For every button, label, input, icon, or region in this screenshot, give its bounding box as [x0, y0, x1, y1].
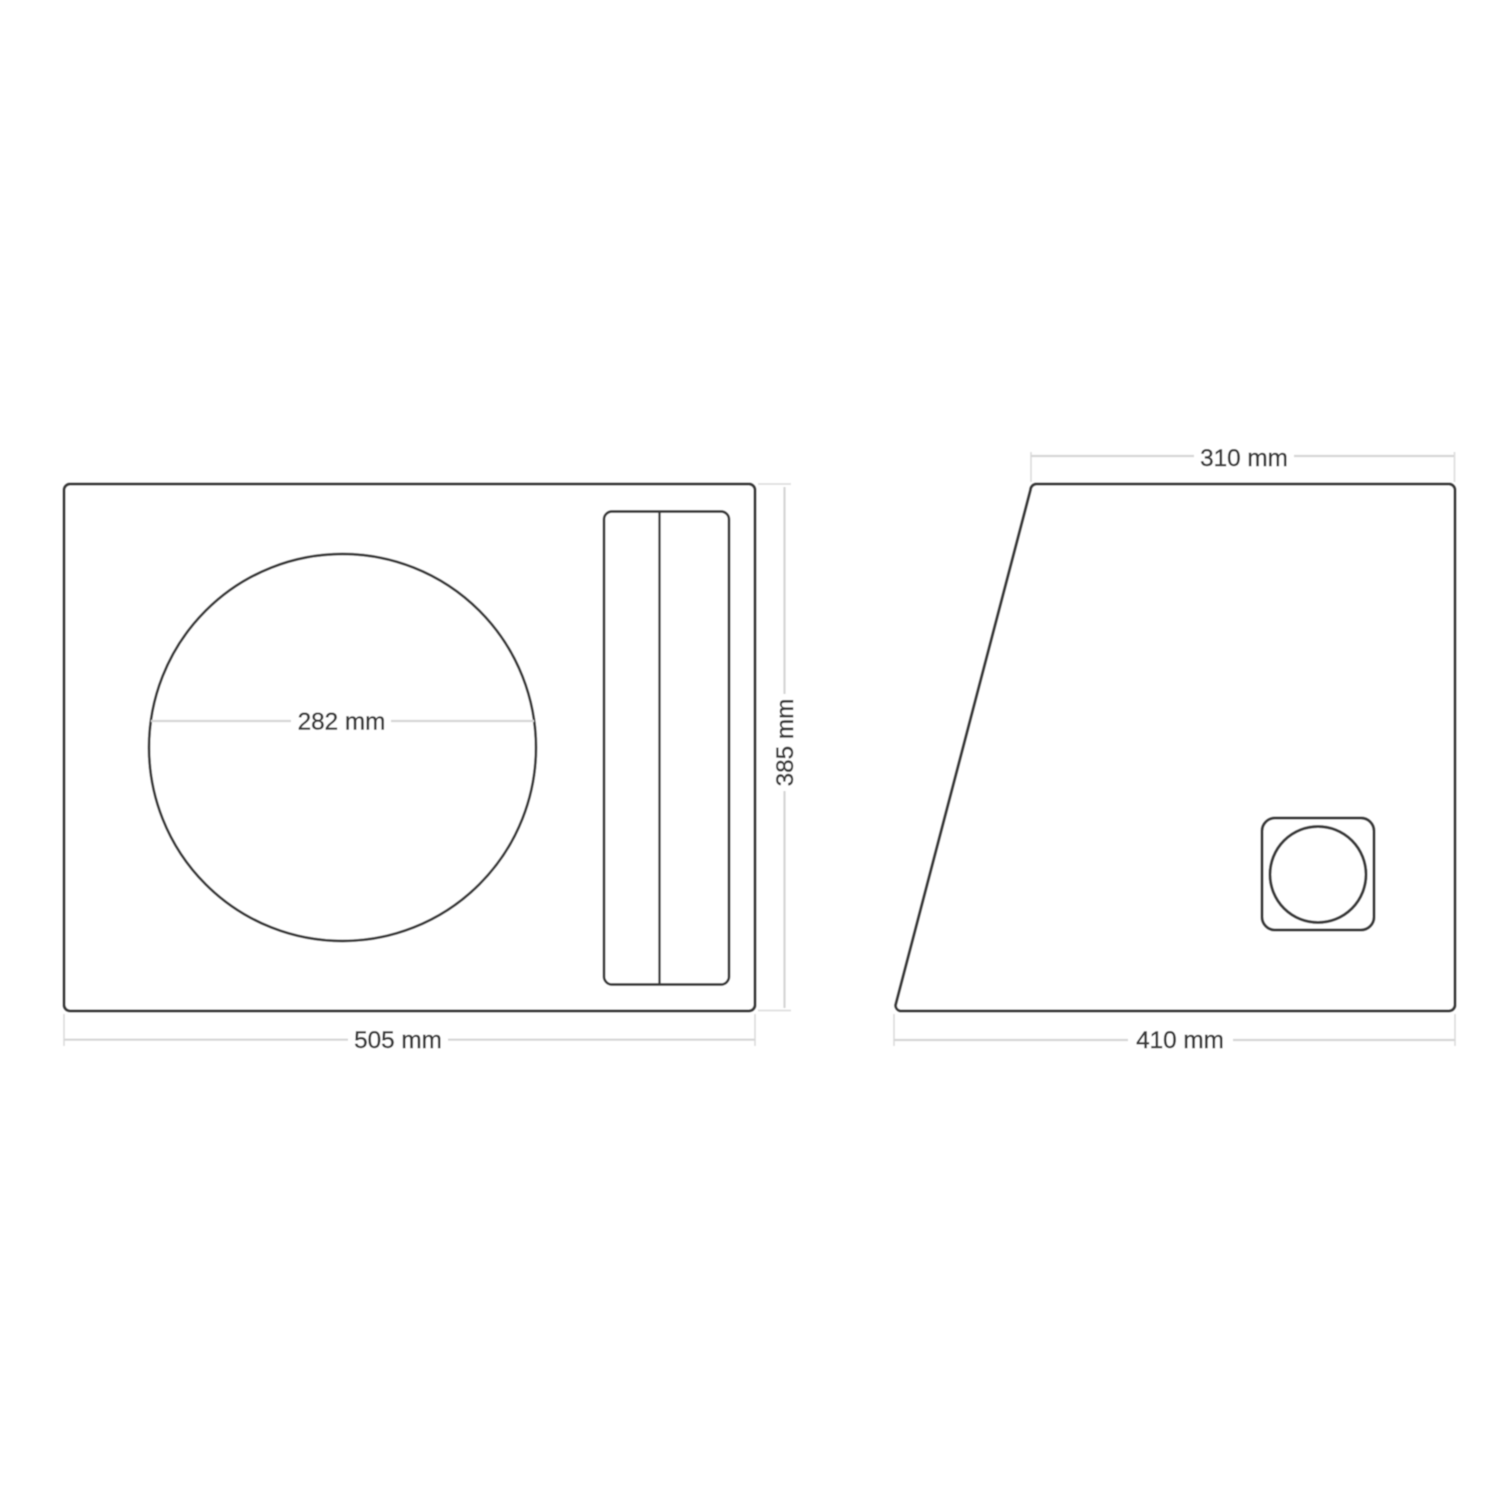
- svg-text:505 mm: 505 mm: [354, 1027, 442, 1054]
- svg-text:282 mm: 282 mm: [298, 709, 386, 736]
- svg-text:410 mm: 410 mm: [1136, 1027, 1224, 1054]
- svg-text:310 mm: 310 mm: [1200, 445, 1288, 472]
- svg-text:385 mm: 385 mm: [772, 699, 799, 787]
